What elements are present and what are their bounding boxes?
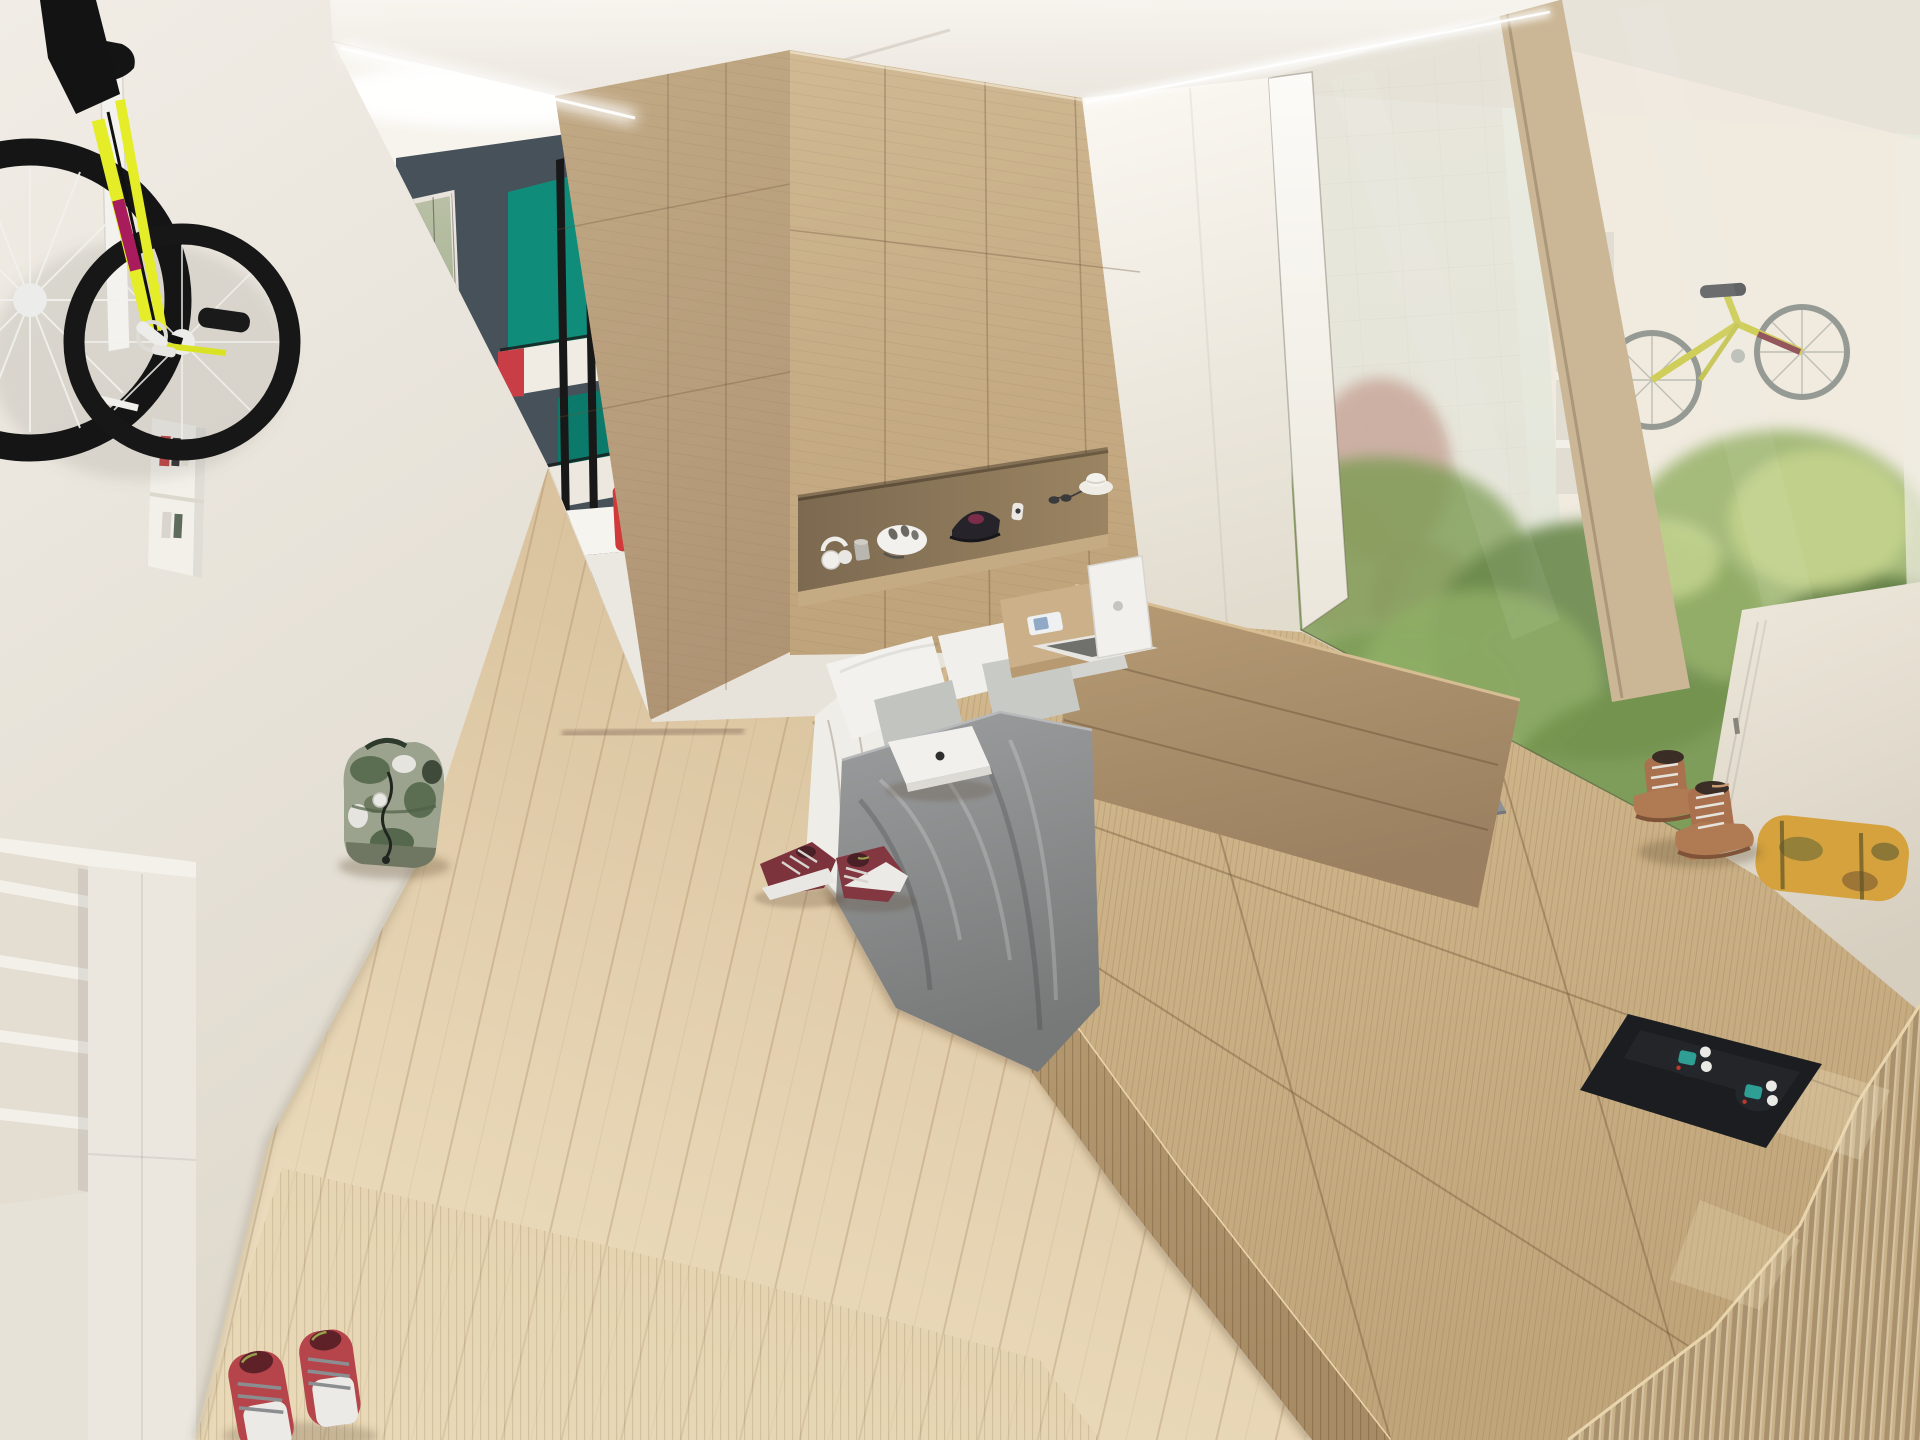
smartphone-screen: [1033, 617, 1049, 631]
bike-rear-hub: [13, 283, 47, 317]
headphones-earcup: [838, 550, 852, 564]
interior-render: [0, 0, 1920, 1440]
apple-logo-icon: [1113, 601, 1123, 611]
hat-dome: [1086, 473, 1106, 487]
cabinet-lower-panel: [0, 1192, 88, 1440]
boot-opening: [1652, 750, 1684, 764]
camo-backpack: [338, 740, 450, 879]
smartwatch-face: [1015, 508, 1020, 513]
camo-bolster-cushion: [1753, 812, 1912, 903]
sneaker-collar: [847, 853, 869, 867]
backpack-cord-end: [382, 856, 390, 864]
camo-patch-dark: [422, 760, 442, 784]
camo-patch-white: [392, 755, 416, 773]
camo-patch: [350, 756, 390, 784]
cap-logo: [968, 514, 984, 524]
built-in-cabinets: [0, 838, 196, 1440]
headphones-earcup: [822, 551, 840, 569]
book-spine: [173, 514, 182, 538]
render-canvas: [0, 0, 1920, 1440]
tape-roll-top: [854, 539, 868, 545]
bay-shadow: [78, 868, 88, 1192]
fridge-shadow: [562, 730, 744, 734]
apple-logo-icon: [936, 752, 945, 761]
book-spine: [161, 512, 171, 538]
backpack-button: [373, 793, 387, 807]
